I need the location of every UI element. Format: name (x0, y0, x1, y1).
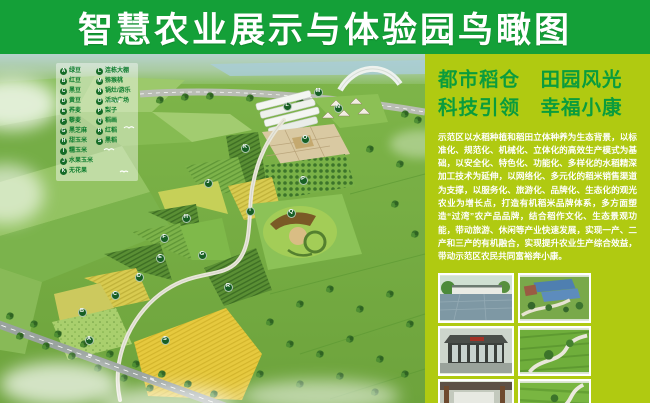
aerial-map: A绿豆B红豆C黑豆D黄豆E荞麦F藜麦G黑芝麻H甜玉米I糯玉米J水果玉米K无花果 … (0, 54, 425, 403)
map-marker-K: K (241, 144, 250, 153)
description-text: 示范区以水稻种植和稻田立体种养为生态背景，以标准化、规范化、机械化、立体化的高效… (438, 131, 637, 264)
photo-factory-aerial (518, 273, 591, 323)
map-marker-E: E (156, 254, 165, 263)
map-marker-D: D (135, 273, 144, 282)
map-marker-L: L (283, 102, 292, 111)
map-marker-G: G (198, 251, 207, 260)
map-marker-A: A (85, 336, 94, 345)
map-marker-O: O (301, 135, 310, 144)
map-marker-M: M (314, 88, 323, 97)
slogan-line-1: 都市稻仓 田园风光 (438, 66, 636, 94)
photo-grid (438, 273, 636, 403)
map-marker-F: F (160, 234, 169, 243)
map-marker-Q: Q (287, 209, 296, 218)
photo-field-path (518, 379, 591, 403)
map-marker-S: S (161, 336, 170, 345)
photo-courtyard-veranda (438, 379, 514, 403)
map-marker-I: I (246, 207, 255, 216)
map-marker-H: H (182, 214, 191, 223)
photo-plaza-courtyard (438, 273, 514, 323)
page-title: 智慧农业展示与体验园鸟瞰图 (78, 2, 572, 53)
map-marker-B: B (78, 308, 87, 317)
photo-exhibition-hall (438, 326, 514, 376)
map-markers: ABCDEFGHIJKLMNOPQRS (0, 54, 425, 403)
map-marker-J: J (204, 179, 213, 188)
map-marker-R: R (224, 283, 233, 292)
title-banner: 智慧农业展示与体验园鸟瞰图 (0, 0, 650, 54)
info-panel: 都市稻仓 田园风光 科技引领 幸福小康 示范区以水稻种植和稻田立体种养为生态背景… (425, 54, 650, 403)
map-marker-C: C (111, 291, 120, 300)
slogan-line-2: 科技引领 幸福小康 (438, 94, 636, 122)
photo-field-boardwalk (518, 326, 591, 376)
map-marker-N: N (334, 104, 343, 113)
map-marker-P: P (299, 176, 308, 185)
